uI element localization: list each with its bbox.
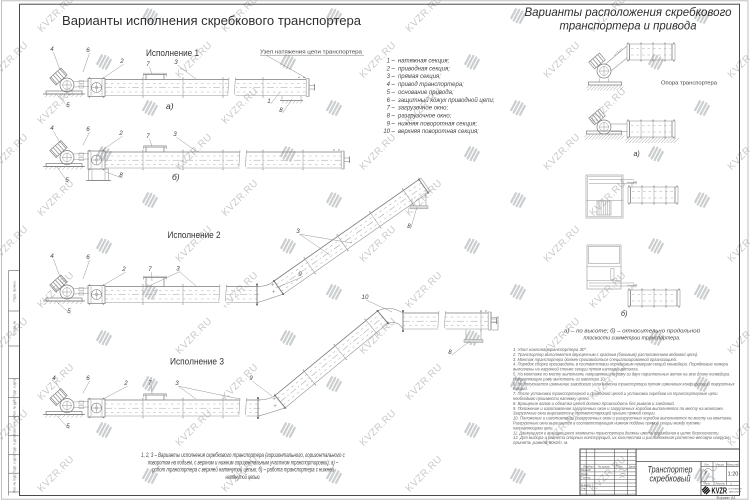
- svg-text:основание привода;: основание привода;: [398, 90, 454, 96]
- svg-text:7: 7: [146, 61, 150, 68]
- svg-text:4: 4: [50, 125, 54, 132]
- svg-text:6: 6: [86, 47, 90, 54]
- svg-text:3: 3: [175, 380, 179, 387]
- svg-text:3: 3: [296, 228, 300, 235]
- svg-text:2: 2: [121, 266, 126, 273]
- svg-text:робот транспортера с верхней н: робот транспортера с верхней натянутой ц…: [151, 466, 334, 474]
- svg-text:6: 6: [86, 375, 90, 382]
- svg-text:Взам. инв. №: Взам. инв. №: [13, 416, 17, 436]
- svg-text:защитный кожух приводной цепи;: защитный кожух приводной цепи;: [397, 97, 495, 104]
- svg-text:7: 7: [148, 266, 152, 273]
- svg-text:5: 5: [65, 177, 69, 184]
- svg-text:б): б): [621, 310, 627, 318]
- svg-text:–: –: [391, 129, 396, 135]
- svg-text:Подп. и дата: Подп. и дата: [13, 435, 17, 454]
- svg-text:натянутой цепью.: натянутой цепью.: [226, 473, 261, 481]
- svg-text:4: 4: [52, 375, 56, 382]
- svg-text:4: 4: [50, 46, 54, 53]
- svg-text:Масштаб: Масштаб: [727, 462, 739, 466]
- svg-text:1: 1: [267, 98, 270, 105]
- svg-text:3: 3: [173, 131, 177, 138]
- svg-text:7: 7: [146, 133, 150, 140]
- svg-text:№ докум.: № докум.: [598, 464, 611, 468]
- svg-text:1, 2, 3 – Варианты исполнения: 1, 2, 3 – Варианты исполнения скребковог…: [141, 451, 345, 459]
- svg-text:Инв. № подл.: Инв. № подл.: [13, 473, 17, 493]
- svg-text:3: 3: [174, 59, 178, 66]
- svg-text:принять равной 60кг/п. м.: принять равной 60кг/п. м.: [513, 440, 568, 445]
- svg-text:ЗАВОД КВЗР: ЗАВОД КВЗР: [729, 490, 742, 493]
- svg-text:Варианты исполнения скребковог: Варианты исполнения скребкового транспор…: [62, 13, 362, 28]
- svg-text:2: 2: [123, 380, 128, 387]
- svg-text:Т.контр.: Т.контр.: [581, 476, 591, 480]
- svg-text:Варианты расположения скребков: Варианты расположения скребкового: [525, 5, 732, 19]
- svg-text:–: –: [391, 121, 396, 127]
- svg-text:2: 2: [119, 58, 124, 65]
- svg-text:–: –: [391, 98, 396, 104]
- svg-text:–: –: [391, 82, 396, 88]
- svg-text:–: –: [391, 90, 396, 96]
- svg-text:Подп. и дата: Подп. и дата: [13, 454, 17, 473]
- svg-text:а): а): [634, 151, 640, 158]
- svg-text:натяжная секция;: натяжная секция;: [398, 59, 450, 65]
- svg-text:поворотом на подъем, с верхним: поворотом на подъем, с верхним и нижним …: [148, 458, 339, 466]
- svg-text:9: 9: [298, 271, 302, 278]
- svg-text:–: –: [391, 113, 396, 119]
- svg-text:8: 8: [119, 172, 123, 179]
- svg-text:5: 5: [67, 308, 71, 315]
- svg-text:а) – по высоте; б) – относи: а) – по высоте; б) – относительно продол…: [564, 328, 700, 335]
- svg-text:8: 8: [407, 223, 411, 230]
- svg-text:КОТЕЛЬНЫЙ: КОТЕЛЬНЫЙ: [729, 488, 743, 491]
- svg-text:Исполнение 3: Исполнение 3: [170, 357, 224, 367]
- svg-text:Лит.: Лит.: [704, 462, 709, 466]
- svg-text:6. Не допускается изменение за: 6. Не допускается изменение заводского у…: [513, 381, 735, 386]
- svg-text:Утв.: Утв.: [581, 487, 587, 491]
- svg-text:1: 1: [387, 59, 390, 65]
- svg-text:KVZR: KVZR: [712, 486, 728, 495]
- svg-text:привод транспортера;: привод транспортера;: [398, 82, 464, 88]
- svg-text:Подп.: Подп.: [616, 464, 624, 468]
- svg-text:Дата: Дата: [629, 464, 636, 468]
- svg-text:приводная секция;: приводная секция;: [398, 66, 450, 72]
- svg-text:8: 8: [448, 349, 452, 356]
- svg-text:Опора транспортера: Опора транспортера: [661, 81, 717, 87]
- svg-text:транспортера и привода: транспортера и привода: [560, 19, 697, 33]
- svg-text:5: 5: [66, 423, 70, 430]
- svg-text:1:20: 1:20: [728, 472, 739, 478]
- svg-text:б): б): [172, 172, 180, 182]
- svg-text:5: 5: [66, 102, 70, 109]
- svg-text:10: 10: [383, 129, 390, 135]
- svg-text:Масса: Масса: [716, 462, 725, 466]
- svg-text:прямая секция;: прямая секция;: [398, 74, 441, 80]
- svg-text:3: 3: [176, 266, 180, 273]
- svg-text:нижняя поворотная секция;: нижняя поворотная секция;: [398, 121, 477, 127]
- svg-text:Справ. №: Справ. №: [13, 320, 17, 335]
- svg-text:Инв. № дубл.: Инв. № дубл.: [13, 397, 17, 417]
- svg-text:7: 7: [148, 380, 152, 387]
- svg-text:6: 6: [86, 254, 90, 261]
- svg-text:загрузочное окно;: загрузочное окно;: [397, 106, 449, 112]
- svg-text:Исполнение 1: Исполнение 1: [146, 48, 199, 58]
- svg-text:Формат А1: Формат А1: [716, 496, 735, 500]
- svg-text:верхняя поворотная секция;: верхняя поворотная секция;: [398, 129, 479, 135]
- svg-text:2: 2: [386, 66, 391, 72]
- svg-text:скребковый: скребковый: [650, 474, 691, 484]
- svg-text:Узел натяжения цепи транспорте: Узел натяжения цепи транспортера: [260, 50, 362, 56]
- svg-text:2: 2: [118, 130, 123, 137]
- svg-text:Исполнение 2: Исполнение 2: [168, 230, 221, 240]
- svg-text:а): а): [166, 101, 174, 111]
- svg-text:–: –: [391, 74, 396, 80]
- svg-text:8: 8: [279, 107, 283, 114]
- svg-text:6: 6: [86, 126, 90, 133]
- svg-text:–: –: [391, 106, 396, 112]
- svg-text:разгрузочное окно;: разгрузочное окно;: [397, 113, 452, 119]
- svg-text:–: –: [391, 66, 396, 72]
- svg-text:10: 10: [362, 294, 369, 301]
- svg-text:Подп. и дата: Подп. и дата: [13, 378, 17, 397]
- svg-text:Перв. примен.: Перв. примен.: [13, 280, 17, 301]
- svg-text:–: –: [391, 59, 396, 65]
- svg-text:плоскости симметрии транспорте: плоскости симметрии транспортера.: [584, 336, 681, 342]
- svg-text:9: 9: [249, 375, 253, 382]
- svg-text:4: 4: [50, 253, 54, 260]
